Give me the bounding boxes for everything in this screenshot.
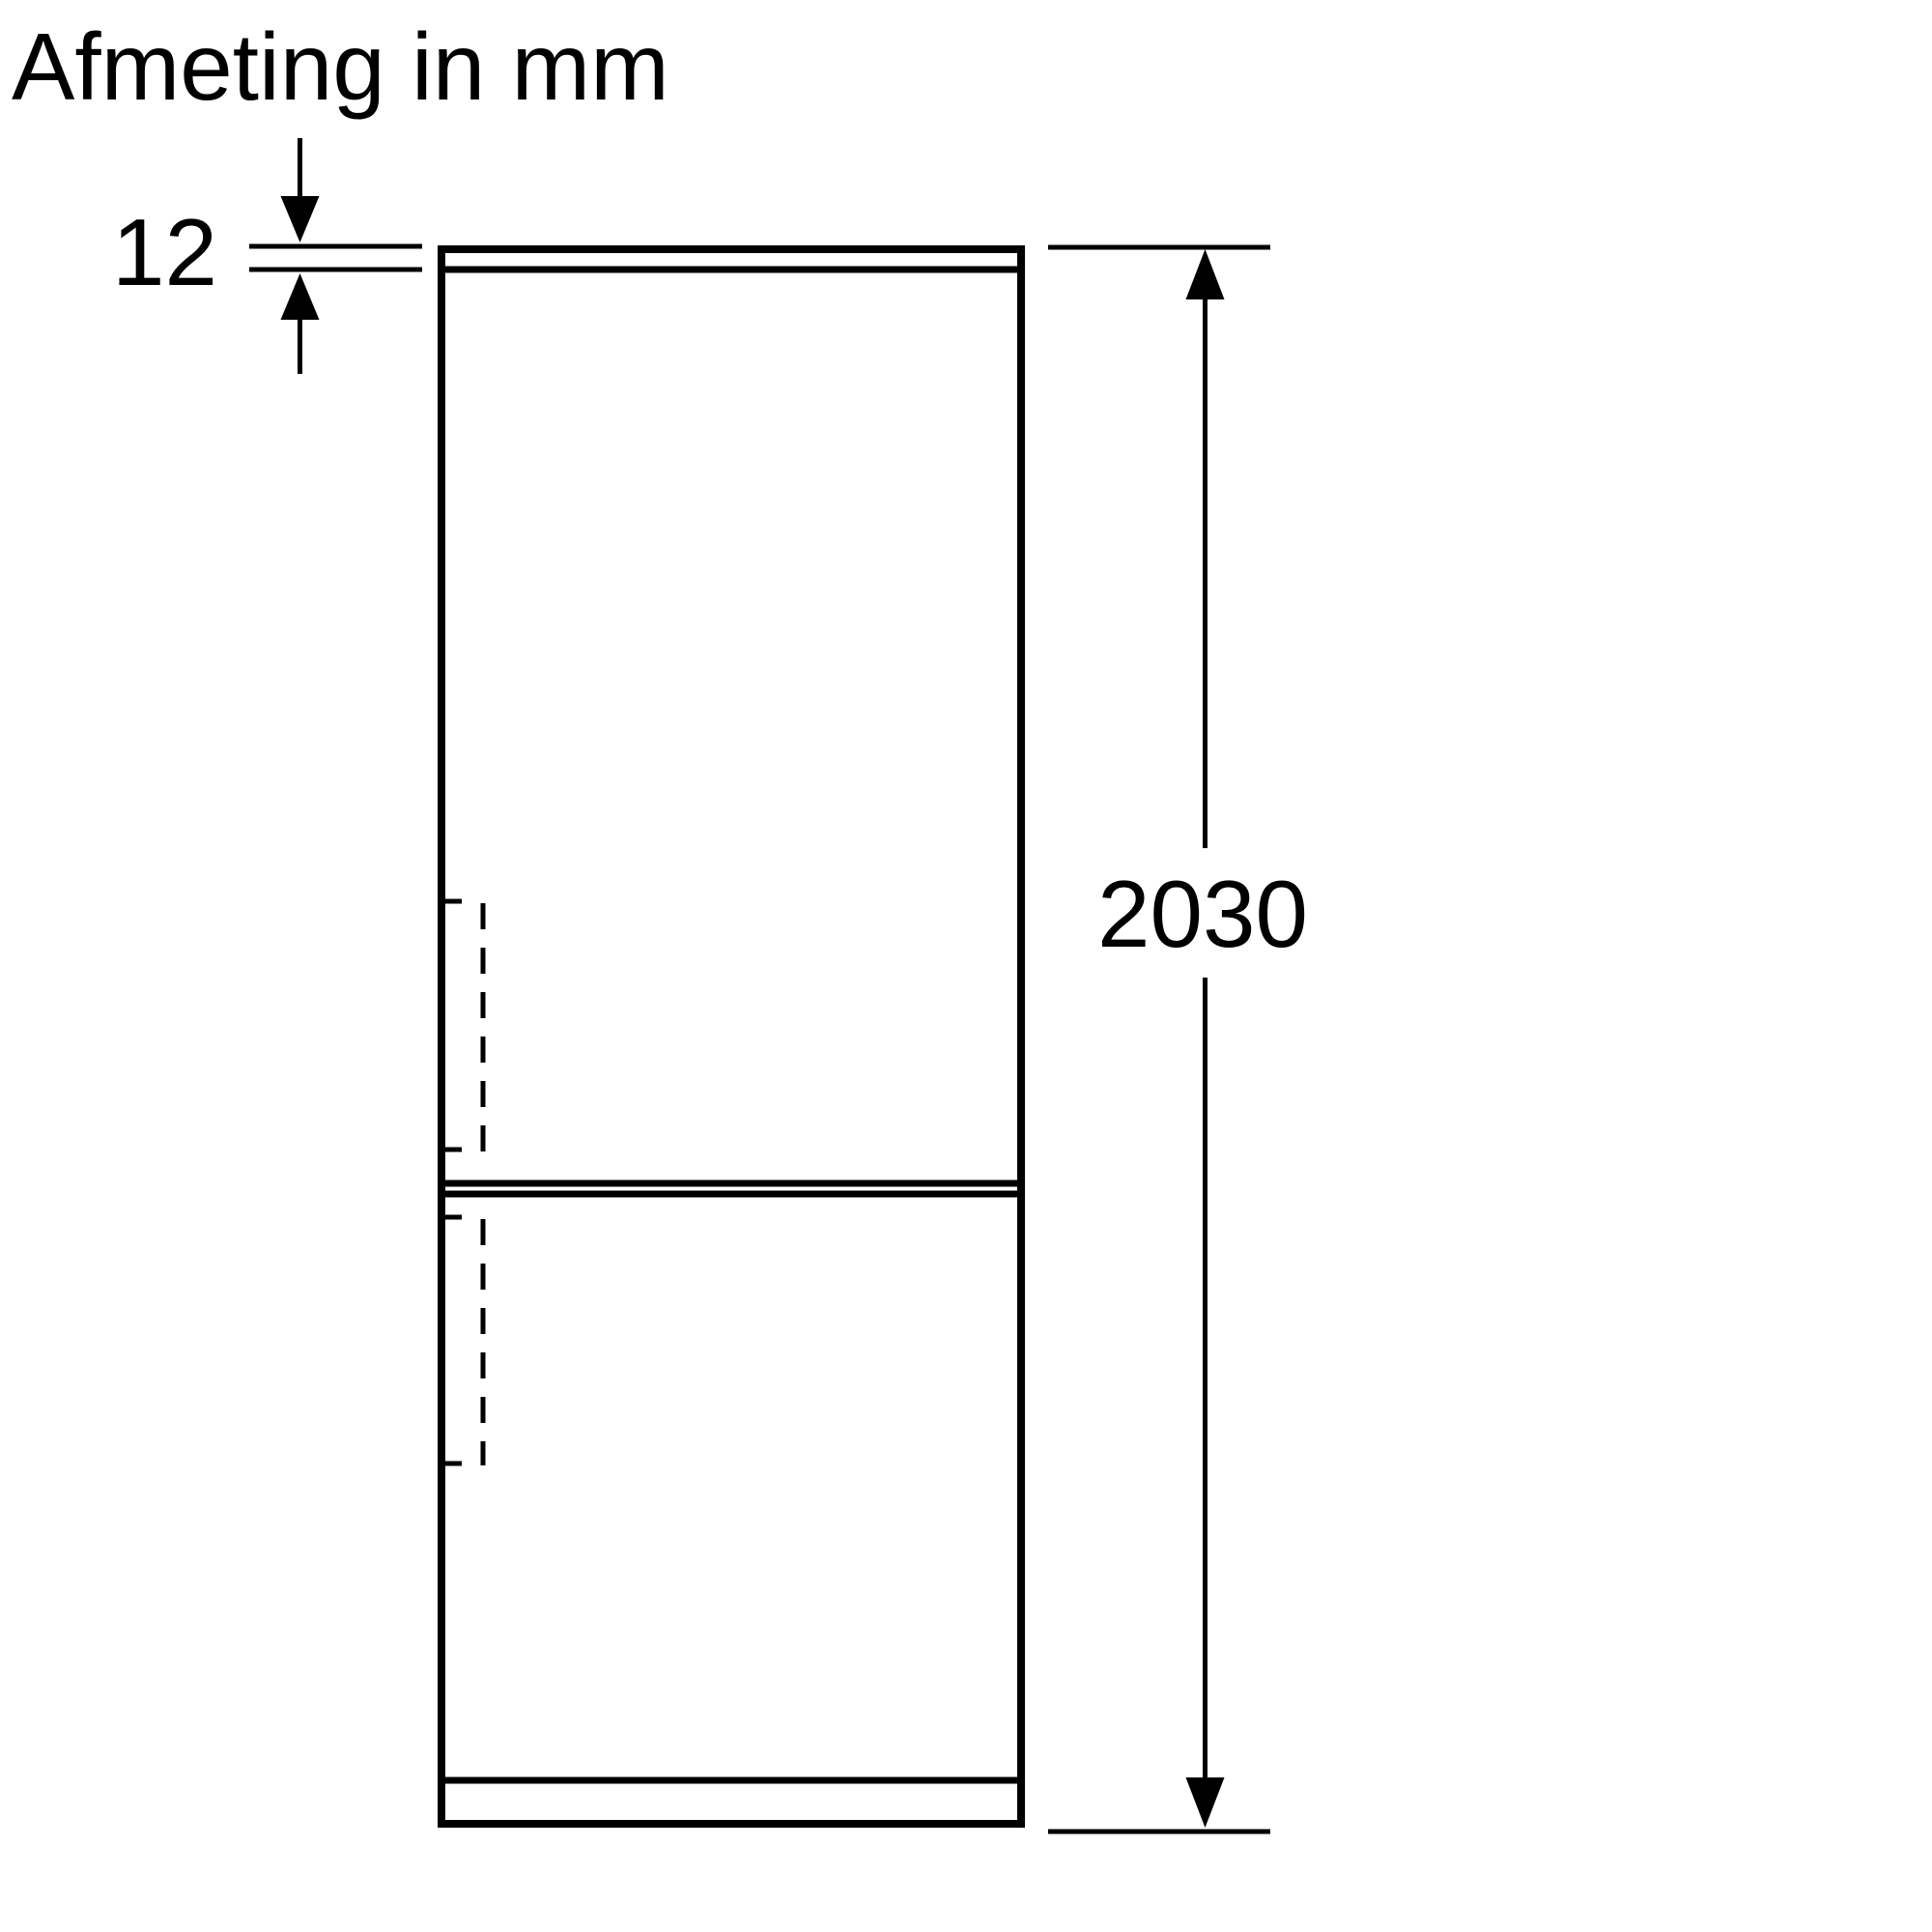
dimension-height-label: 2030 xyxy=(1097,861,1308,967)
dimension-height-arrow-down xyxy=(1186,1777,1225,1828)
cabinet-outline xyxy=(441,249,1021,1824)
dimension-overall-height: 2030 xyxy=(1048,247,1308,1832)
dimension-height-arrow-up xyxy=(1186,249,1225,299)
appliance-dimension-diagram: Afmeting in mm 12 xyxy=(0,0,1932,1932)
fridge-freezer-outline xyxy=(438,249,1021,1824)
dimension-top-panel-arrow-up xyxy=(281,273,320,320)
dimension-drawing-canvas: Afmeting in mm 12 xyxy=(0,0,1932,1932)
diagram-title: Afmeting in mm xyxy=(12,14,669,120)
dimension-top-panel-arrow-down xyxy=(281,196,320,242)
dimension-top-panel-label: 12 xyxy=(112,199,217,305)
dimension-top-panel: 12 xyxy=(112,138,422,374)
